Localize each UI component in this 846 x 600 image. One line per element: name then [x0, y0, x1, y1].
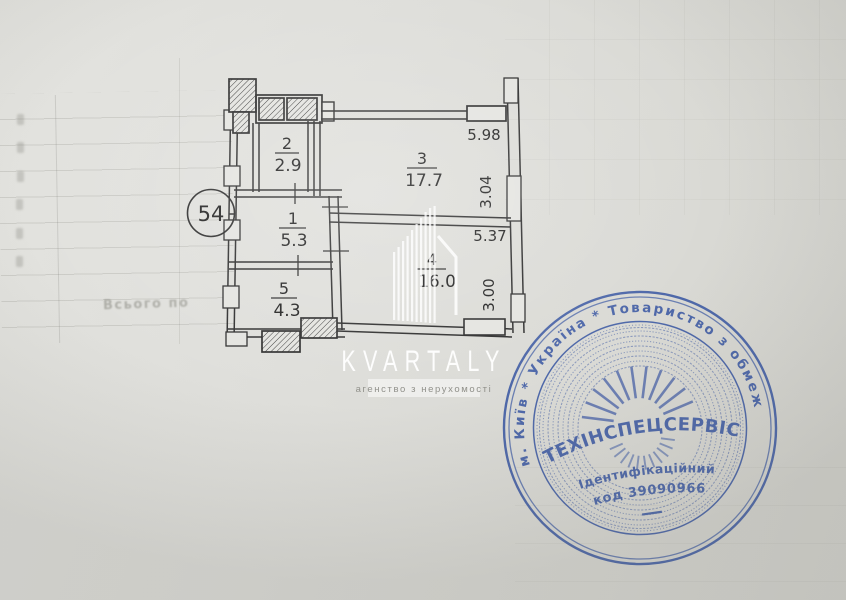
room4-area: 16.0: [418, 272, 456, 292]
room3-number: 3: [417, 149, 427, 168]
floor-plan: [188, 78, 526, 352]
room3-area: 17.7: [405, 171, 443, 191]
dimension-right-lower: 3.00: [480, 278, 498, 311]
scanned-floor-plan-page: Всього по: [0, 0, 846, 600]
watermark-brand-text: KVARTALY: [341, 344, 506, 378]
room2-area: 2.9: [274, 156, 301, 176]
stamp-bottom-dash: [642, 512, 662, 515]
room1-number: 1: [288, 209, 298, 228]
wall-room1-room5: [229, 255, 333, 276]
dimension-middle: 5.37: [473, 227, 506, 245]
stamp-texts: м. Київ * Україна * Товариство з обмежен…: [0, 0, 779, 600]
wall-right-outer: [504, 78, 525, 333]
room1-area: 5.3: [280, 231, 307, 251]
room5-area: 4.3: [273, 301, 300, 321]
floor-plan-labels: 54 2 2.9 3 17.7 1 5.3 4 16.0 5 4.3 5.98 …: [198, 126, 507, 321]
unit-number: 54: [198, 202, 225, 226]
wall-room5-bottom: [226, 318, 345, 352]
floor-plan-drawing: 54 2 2.9 3 17.7 1 5.3 4 16.0 5 4.3 5.98 …: [0, 0, 846, 600]
stamp-company-name: «ТЕХІНСПЕЦСЕРВІС»: [0, 0, 745, 545]
room5-number: 5: [279, 279, 289, 298]
company-stamp: м. Київ * Україна * Товариство з обмежен…: [0, 0, 794, 600]
dimension-top: 5.98: [467, 126, 500, 144]
room2-number: 2: [282, 134, 292, 153]
dimension-right-upper: 3.04: [477, 175, 495, 208]
wall-room3-top: [321, 106, 506, 121]
hatched-wall-block-top-left: [229, 79, 334, 133]
svg-text:м. Київ * Україна * Товари: м. Київ * Україна * Товариство з обмежен…: [0, 0, 770, 541]
wall-corridor-vertical: [322, 196, 349, 330]
wall-room2-room1: [234, 183, 342, 204]
stamp-ring-text: м. Київ * Україна * Товариство з обмежен…: [0, 0, 770, 541]
svg-text:«ТЕХІНСПЕЦСЕРВІС»: «ТЕХІНСПЕЦСЕРВІС»: [0, 0, 745, 545]
watermark-tagline-text: агенство з нерухомості: [356, 384, 493, 395]
